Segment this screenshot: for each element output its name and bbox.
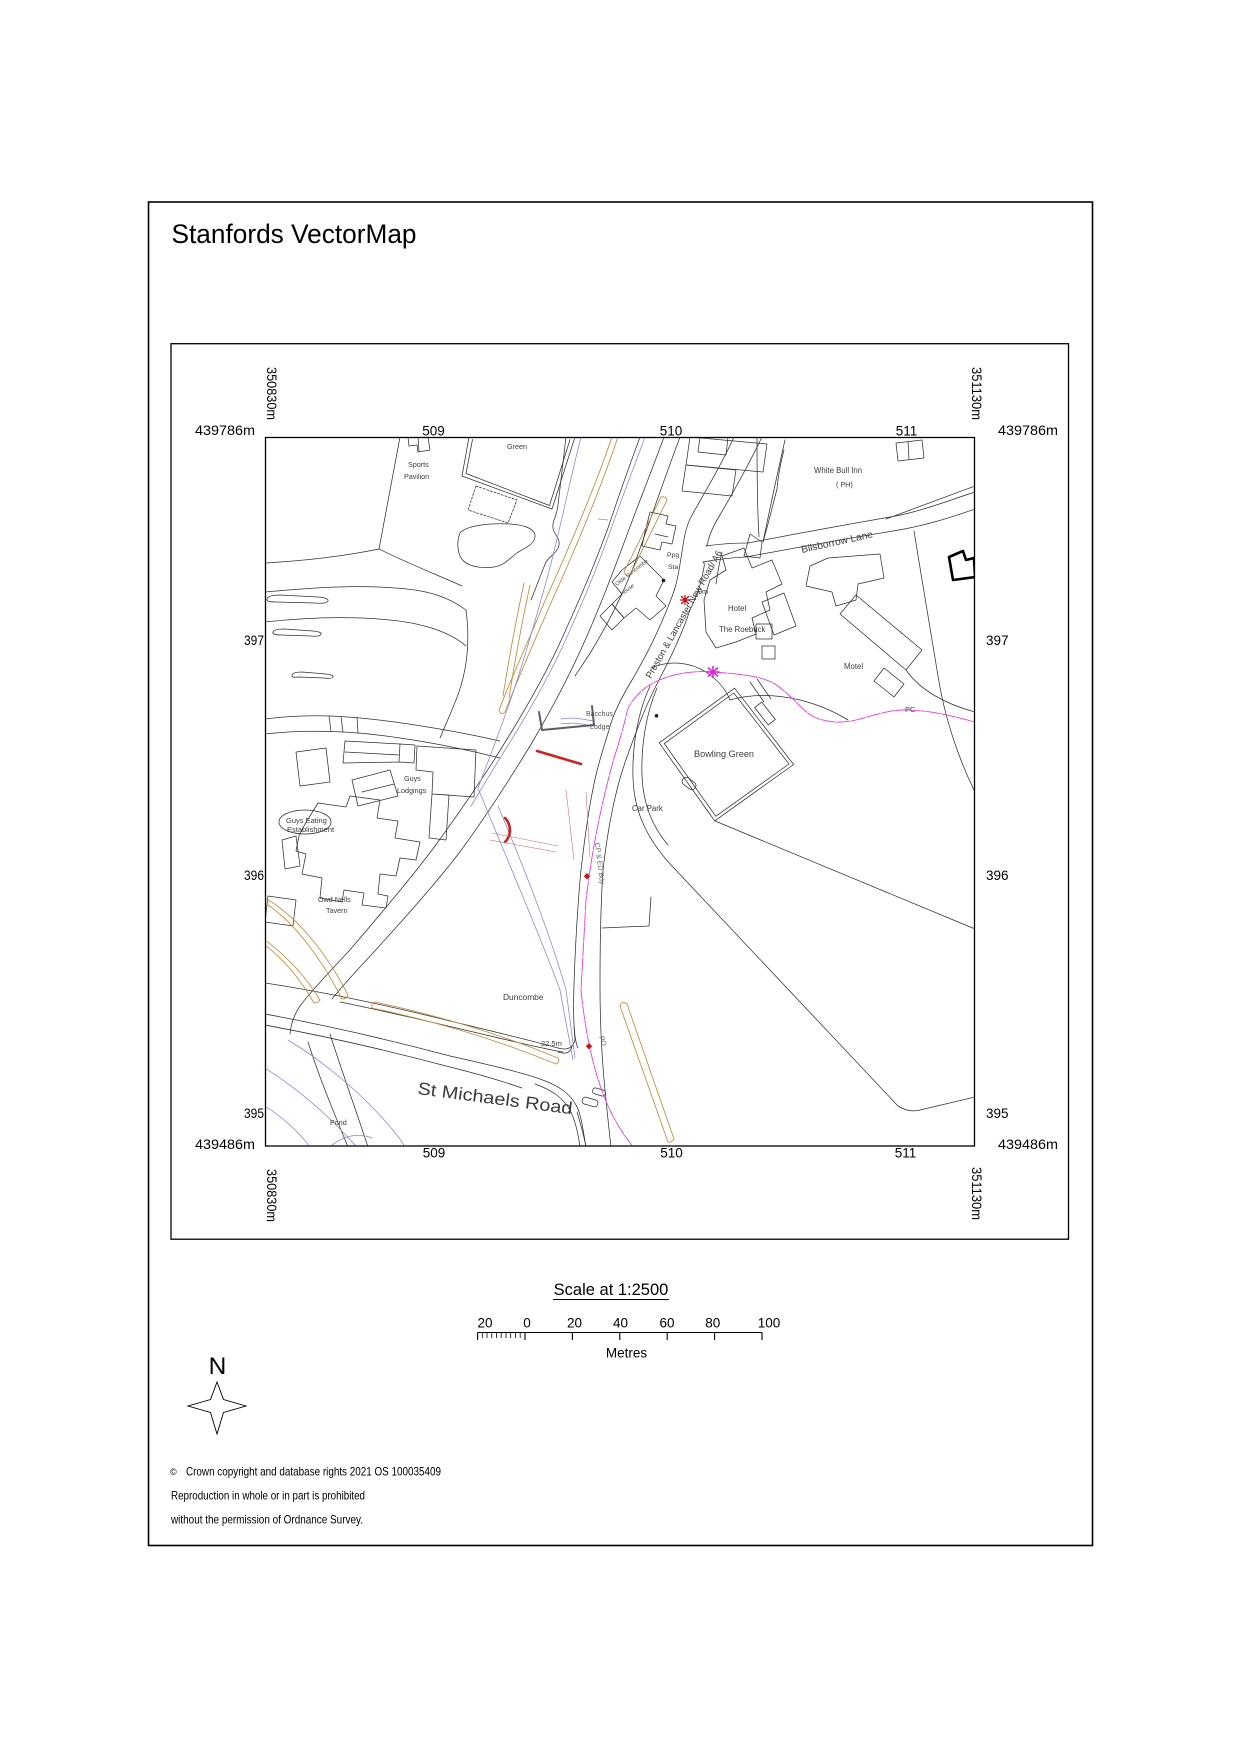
- svg-text:Green: Green: [507, 442, 527, 451]
- svg-text:The Roebuck: The Roebuck: [719, 625, 765, 634]
- svg-text:397: 397: [986, 633, 1009, 648]
- svg-text:Guys: Guys: [404, 774, 421, 783]
- svg-text:PC: PC: [905, 705, 916, 714]
- svg-text:Scale at 1:2500: Scale at 1:2500: [554, 1281, 669, 1299]
- svg-text:Establishment: Establishment: [287, 825, 335, 834]
- svg-text:Sports: Sports: [408, 460, 429, 469]
- svg-text:without the permission of Ordn: without the permission of Ordnance Surve…: [170, 1513, 363, 1527]
- svg-text:Stanfords VectorMap: Stanfords VectorMap: [172, 219, 417, 249]
- svg-text:20: 20: [567, 1316, 582, 1331]
- svg-text:Guys Eating: Guys Eating: [286, 816, 327, 825]
- svg-text:20: 20: [477, 1316, 492, 1331]
- svg-text:Sta: Sta: [668, 564, 678, 571]
- svg-text:396: 396: [244, 868, 264, 883]
- svg-text:439786m: 439786m: [195, 423, 255, 438]
- svg-text:Pavilion: Pavilion: [404, 472, 429, 481]
- svg-text:Pond: Pond: [330, 1118, 347, 1127]
- svg-text:350830m: 350830m: [264, 1169, 279, 1222]
- svg-text:Bacchus: Bacchus: [586, 711, 613, 718]
- svg-text:Motel: Motel: [844, 662, 863, 671]
- svg-text:©: ©: [170, 1467, 177, 1477]
- svg-text:Lodgings: Lodgings: [397, 786, 427, 795]
- svg-text:Ppg: Ppg: [667, 552, 679, 559]
- svg-text:100: 100: [758, 1316, 781, 1331]
- svg-text:439786m: 439786m: [998, 423, 1058, 438]
- svg-text:Duncombe: Duncombe: [503, 992, 544, 1002]
- svg-text:511: 511: [896, 423, 918, 438]
- svg-text:396: 396: [986, 868, 1009, 883]
- svg-text:60: 60: [659, 1316, 674, 1331]
- svg-text:439486m: 439486m: [195, 1137, 255, 1152]
- svg-text:Tavern: Tavern: [326, 906, 348, 915]
- svg-text:397: 397: [244, 633, 264, 648]
- svg-text:( PH): ( PH): [836, 480, 853, 489]
- svg-text:Hotel: Hotel: [728, 604, 746, 613]
- svg-text:22.5m: 22.5m: [541, 1039, 562, 1048]
- svg-text:80: 80: [705, 1316, 720, 1331]
- svg-text:N: N: [209, 1353, 227, 1380]
- svg-text:395: 395: [986, 1106, 1009, 1121]
- svg-text:509: 509: [422, 423, 445, 438]
- svg-text:Reproduction in whole or in pa: Reproduction in whole or in part is proh…: [171, 1489, 365, 1503]
- svg-text:350830m: 350830m: [264, 367, 279, 420]
- svg-text:351130m: 351130m: [969, 1167, 984, 1220]
- svg-text:Car Park: Car Park: [632, 804, 663, 813]
- svg-text:Lodge: Lodge: [590, 724, 610, 731]
- svg-text:White Bull Inn: White Bull Inn: [814, 466, 862, 475]
- svg-text:439486m: 439486m: [998, 1137, 1058, 1152]
- svg-text:40: 40: [613, 1316, 628, 1331]
- svg-text:510: 510: [660, 423, 683, 438]
- svg-text:395: 395: [244, 1106, 264, 1121]
- svg-text:Metres: Metres: [606, 1346, 648, 1361]
- svg-text:509: 509: [423, 1146, 446, 1161]
- svg-text:Owd Nells: Owd Nells: [318, 895, 351, 904]
- svg-text:Bowling Green: Bowling Green: [694, 749, 754, 759]
- svg-text:511: 511: [895, 1146, 917, 1161]
- svg-text:510: 510: [660, 1146, 683, 1161]
- svg-text:Crown copyright and database r: Crown copyright and database rights 2021…: [186, 1465, 441, 1479]
- svg-text:0: 0: [523, 1316, 531, 1331]
- svg-text:351130m: 351130m: [969, 367, 984, 420]
